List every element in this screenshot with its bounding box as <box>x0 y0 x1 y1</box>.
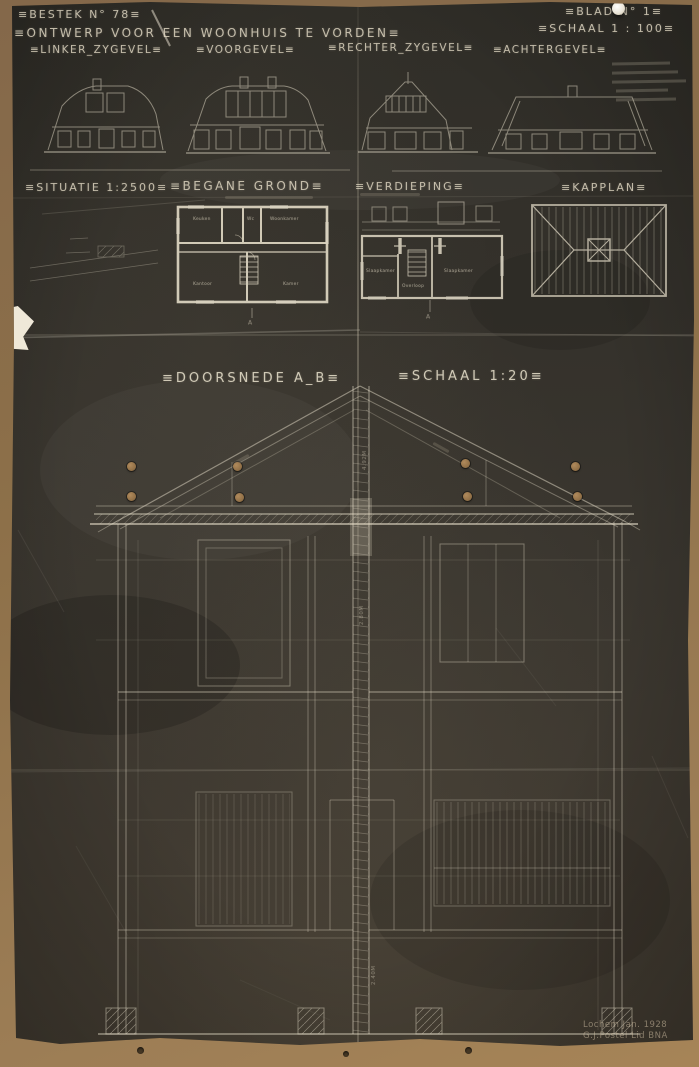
blueprint-linework <box>0 0 699 1067</box>
label-schaal-20: ≡SCHAAL 1:20≡ <box>398 369 545 384</box>
blueprint-sheet: ≡BESTEK N° 78≡ ≡ONTWERP VOOR EEN WOONHUI… <box>0 0 699 1067</box>
dimension-lower-storey: 2.40M <box>371 965 377 985</box>
label-kapplan: ≡KAPPLAN≡ <box>561 181 647 194</box>
room-slaapkamer-left: Slaapkamer <box>366 268 395 273</box>
push-pin <box>612 2 625 15</box>
dimension-roof: 4.92M <box>362 450 368 470</box>
horizontal-fold-crease-upper <box>0 334 699 336</box>
punch-hole <box>235 493 244 502</box>
room-wc: Wc <box>247 216 254 221</box>
punch-hole <box>573 492 582 501</box>
label-achtergevel: ≡ACHTERGEVEL≡ <box>493 44 607 56</box>
vertical-fold-crease <box>357 0 359 1067</box>
horizontal-fold-crease-lower <box>0 769 699 771</box>
plan-situatie <box>30 238 158 281</box>
room-kamer: Kamer <box>283 281 299 286</box>
room-keuken: Keuken <box>193 216 211 221</box>
verdieping-sublabel-smudge <box>360 193 420 196</box>
label-situatie: ≡SITUATIE 1:2500≡ <box>25 181 168 194</box>
room-overloop: Overloop <box>402 283 424 288</box>
edge-hole <box>137 1047 144 1054</box>
dimension-upper-storey: 2.80M <box>359 605 365 625</box>
elevation-voorgevel <box>186 77 330 153</box>
plan-kapplan <box>532 205 666 296</box>
main-scale: ≡SCHAAL 1 : 100≡ <box>538 22 675 35</box>
room-woonkamer: Woonkamer <box>270 216 299 221</box>
sheet-title: ≡ONTWERP VOOR EEN WOONHUIS TE VORDEN≡ <box>14 26 401 40</box>
label-rechter-zygevel: ≡RECHTER_ZYGEVEL≡ <box>328 42 474 54</box>
label-verdieping: ≡VERDIEPING≡ <box>355 180 465 193</box>
label-begane-grond: ≡BEGANE GROND≡ <box>170 179 324 193</box>
punch-hole <box>463 492 472 501</box>
section-marker-a-left: A <box>248 319 254 326</box>
signature-architect: G.J.Postel Lid BNA <box>583 1031 668 1041</box>
label-voorgevel: ≡VOORGEVEL≡ <box>196 44 295 56</box>
room-slaapkamer-right: Slaapkamer <box>444 268 473 273</box>
room-kantoor: Kantoor <box>193 281 212 286</box>
section-marker-a-right: A <box>426 313 432 320</box>
elevation-achtergevel <box>488 86 656 153</box>
edge-hole <box>343 1051 349 1057</box>
signature-place-date: Lochem Jan. 1928 <box>583 1020 667 1030</box>
bestek-number: ≡BESTEK N° 78≡ <box>18 8 142 21</box>
punch-hole <box>461 459 470 468</box>
punch-hole <box>233 462 242 471</box>
punch-hole <box>127 492 136 501</box>
elevation-linker-zygevel <box>44 79 166 152</box>
punch-hole <box>571 462 580 471</box>
edge-hole <box>465 1047 472 1054</box>
label-linker-zygevel: ≡LINKER_ZYGEVEL≡ <box>30 44 163 56</box>
begane-grond-sublabel-smudge <box>225 196 313 199</box>
punch-hole <box>127 462 136 471</box>
blueprint-photo: ≡BESTEK N° 78≡ ≡ONTWERP VOOR EEN WOONHUI… <box>0 0 699 1067</box>
plan-begane-grond <box>178 207 327 318</box>
label-doorsnede: ≡DOORSNEDE A_B≡ <box>162 371 341 386</box>
elevation-rechter-zygevel <box>358 72 478 152</box>
